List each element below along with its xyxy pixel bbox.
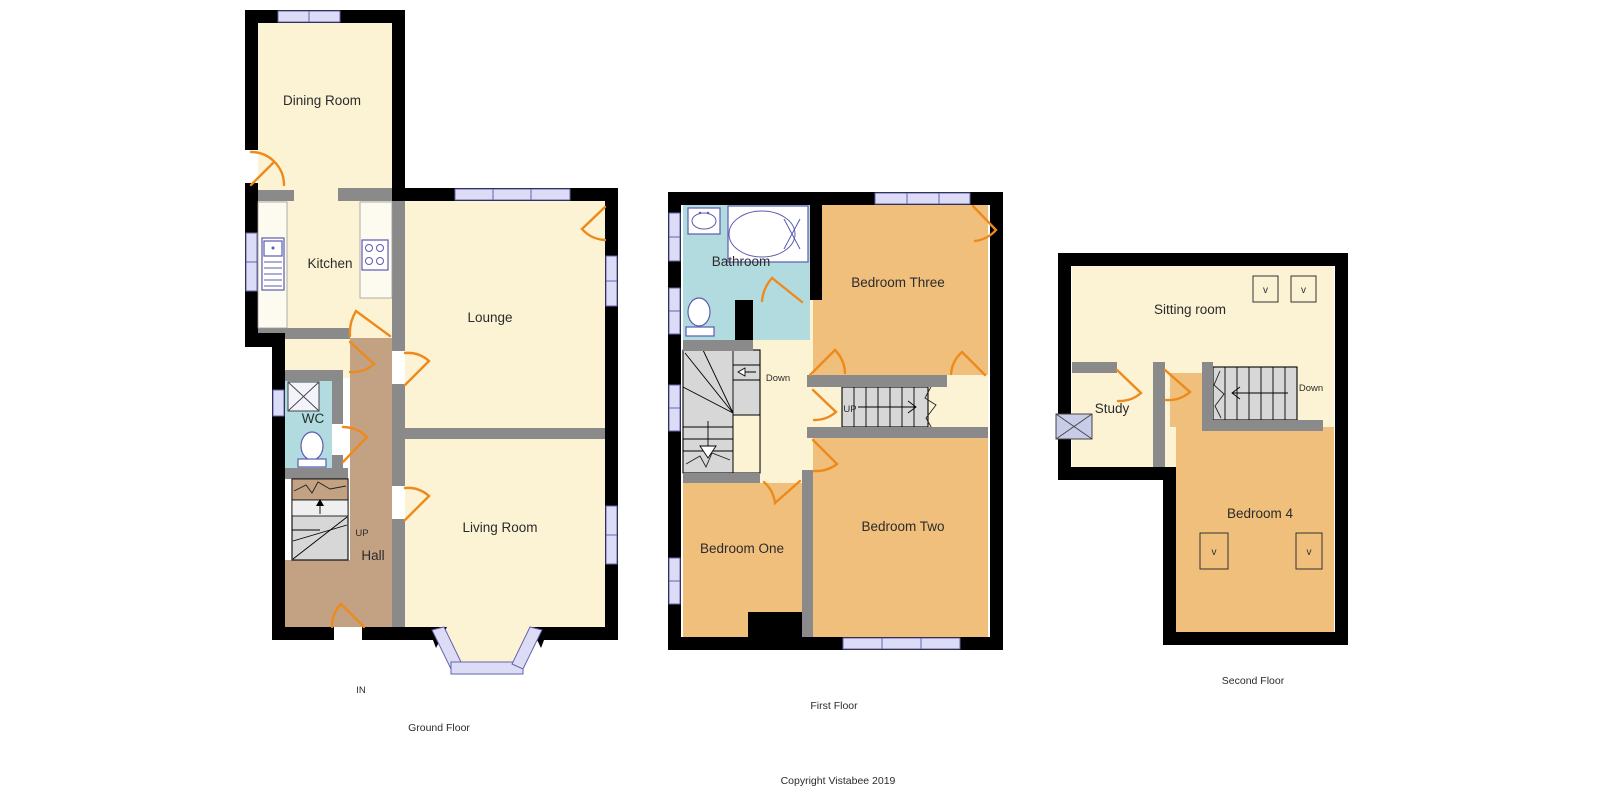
bedroom-three-wall: [807, 375, 947, 387]
wc-right-wall: [332, 455, 343, 468]
hall-lounge-wall: [392, 201, 405, 351]
lounge-living-wall: [405, 428, 605, 439]
room-label-bedroom-four: Bedroom 4: [1227, 506, 1294, 521]
floorplan-drawing: Dining Room Kitchen Lounge WC UP Hall Li…: [0, 0, 1600, 800]
bedroom-divider-wall: [802, 470, 813, 637]
outer-wall: [1058, 467, 1176, 480]
bathroom-post: [735, 300, 753, 340]
lounge-living-floor: [405, 201, 605, 627]
room-label-bedroom-one: Bedroom One: [700, 541, 784, 556]
room-label-sitting: Sitting room: [1154, 302, 1226, 317]
shower-icon: [288, 382, 319, 411]
study-window: [1056, 414, 1092, 439]
entrance-label: IN: [356, 685, 366, 696]
dining-kitchen-wall: [258, 190, 294, 201]
stairs-down-label: Down: [766, 373, 790, 384]
stairs-down-label: Down: [1299, 383, 1323, 394]
room-label-lounge: Lounge: [467, 310, 512, 325]
copyright-text: Copyright Vistabee 2019: [781, 775, 896, 787]
room-label-bathroom: Bathroom: [712, 254, 771, 269]
outer-wall: [362, 627, 394, 640]
kitchen-sink: [262, 238, 284, 290]
bathroom-bottom-wall: [683, 340, 753, 351]
outer-wall: [245, 333, 285, 347]
wc-top-wall: [285, 370, 343, 381]
room-label-dining: Dining Room: [283, 93, 361, 108]
outer-wall: [1163, 480, 1176, 645]
outer-wall: [543, 627, 618, 640]
outer-wall: [990, 192, 1003, 650]
stairs-up-label: UP: [843, 404, 856, 415]
room-label-kitchen: Kitchen: [307, 256, 352, 271]
velux-label: v: [1212, 547, 1217, 558]
stairwell-wall: [1202, 362, 1213, 420]
wc-right-wall: [332, 381, 343, 424]
basin-icon: [688, 208, 720, 234]
outer-wall: [1163, 632, 1348, 645]
velux-label: v: [1301, 285, 1306, 296]
wc-bottom-wall: [285, 468, 348, 479]
outer-wall: [1058, 253, 1071, 480]
room-label-hall: Hall: [361, 548, 384, 563]
outer-wall: [1058, 253, 1348, 266]
velux-label: v: [1307, 547, 1312, 558]
room-label-study: Study: [1095, 401, 1130, 416]
first-floor-down-stairs: [683, 350, 760, 473]
room-label-living: Living Room: [462, 520, 537, 535]
ground-floor-plan: Dining Room Kitchen Lounge WC UP Hall Li…: [245, 10, 618, 734]
second-floor-stairs: [1213, 367, 1297, 420]
room-label-bedroom-two: Bedroom Two: [861, 519, 944, 534]
bedroom-two-floor: [813, 438, 988, 637]
chimney-breast: [748, 612, 802, 637]
ground-stairs: [292, 479, 348, 560]
first-floor-caption: First Floor: [810, 700, 858, 712]
first-floor-plan: Bathroom Bedroom Three Down UP Bedroom O…: [668, 192, 1003, 712]
study-bedroom-wall: [1153, 362, 1165, 467]
hall-lounge-wall: [392, 384, 405, 486]
outer-wall: [392, 10, 405, 201]
hall-living-wall: [392, 519, 405, 627]
dining-kitchen-wall: [338, 188, 392, 201]
sitting-study-wall: [1072, 362, 1117, 373]
bathroom-right-wall: [810, 205, 822, 300]
velux-label: v: [1263, 285, 1268, 296]
bedroom-three-floor: [813, 205, 988, 375]
floorplan-page: Dining Room Kitchen Lounge WC UP Hall Li…: [0, 0, 1600, 800]
outer-wall: [245, 10, 258, 150]
stairwell-wall: [1202, 420, 1323, 431]
stairs-up-label: UP: [355, 528, 368, 539]
outer-wall: [1335, 253, 1348, 645]
second-floor-caption: Second Floor: [1222, 675, 1285, 687]
bedroom-one-top-wall: [683, 473, 760, 483]
second-floor-plan: v v v v Sitting room Study Down Bedroom …: [1056, 253, 1348, 687]
stairwell-wall: [807, 427, 988, 438]
bedroom-four-floor: [1176, 427, 1334, 632]
ground-floor-caption: Ground Floor: [408, 722, 470, 734]
room-label-bedroom-three: Bedroom Three: [851, 275, 945, 290]
outer-wall: [272, 627, 334, 640]
room-label-wc: WC: [302, 411, 325, 426]
kitchen-stove: [362, 240, 388, 270]
